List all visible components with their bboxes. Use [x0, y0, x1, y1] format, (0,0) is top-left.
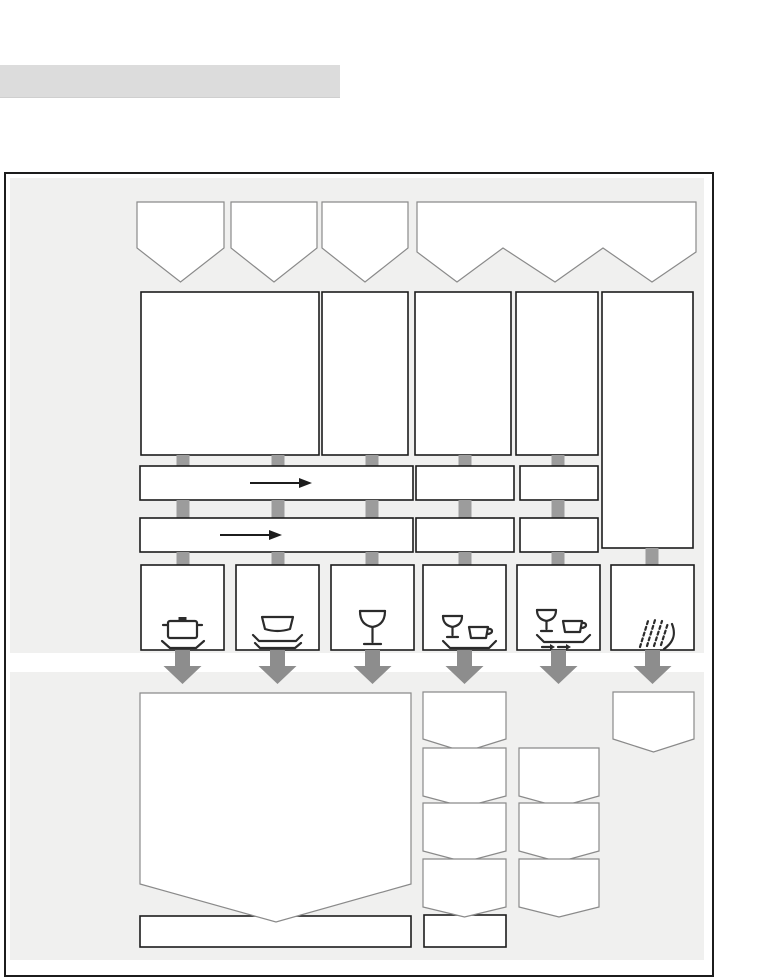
option-banner-col5-2: [519, 803, 599, 862]
stage-box-wide: [141, 292, 319, 455]
connector-tab: [459, 455, 472, 466]
load-box-6: [611, 565, 694, 650]
stage-box-col3: [322, 292, 408, 455]
option-banner-col4-3: [423, 803, 506, 862]
connector-tab: [177, 552, 190, 565]
connector-tab: [552, 500, 565, 518]
connector-tab: [552, 455, 565, 466]
connector-tab: [272, 455, 285, 466]
option-banner-col6-1: [613, 692, 694, 752]
stage-box-col5: [516, 292, 598, 455]
top-banner-4-triple-point: [417, 202, 696, 282]
process-bar-1-col4: [416, 466, 514, 500]
connector-tab: [177, 455, 190, 466]
option-banner-col4-1: [423, 692, 506, 752]
connector-tab: [552, 552, 565, 565]
programme-overview-frame: [4, 172, 714, 977]
result-panel-pointed: [140, 693, 411, 922]
page-title-bar: [0, 65, 340, 98]
process-bar-2-col5: [520, 518, 598, 552]
option-banner-col5-3: [519, 859, 599, 917]
connector-tab: [177, 500, 190, 518]
load-box-2: [236, 565, 319, 650]
programme-overview-diagram: [6, 174, 712, 975]
stage-box-col4: [415, 292, 511, 455]
connector-tab: [366, 552, 379, 565]
connector-tab: [646, 548, 659, 565]
load-box-4: [423, 565, 506, 650]
stage-box-col6-tall: [602, 292, 693, 548]
connector-tab: [272, 552, 285, 565]
manual-page: [0, 0, 778, 980]
process-bar-1-col5: [520, 466, 598, 500]
process-bar-2-col4: [416, 518, 514, 552]
option-banner-col4-2: [423, 748, 506, 807]
option-banner-col4-4: [423, 859, 506, 917]
connector-tab: [459, 500, 472, 518]
connector-tab: [459, 552, 472, 565]
connector-tab: [366, 500, 379, 518]
bottom-strip-col4: [424, 915, 506, 947]
connector-tab: [366, 455, 379, 466]
option-banner-col5-1: [519, 748, 599, 807]
connector-tab: [272, 500, 285, 518]
